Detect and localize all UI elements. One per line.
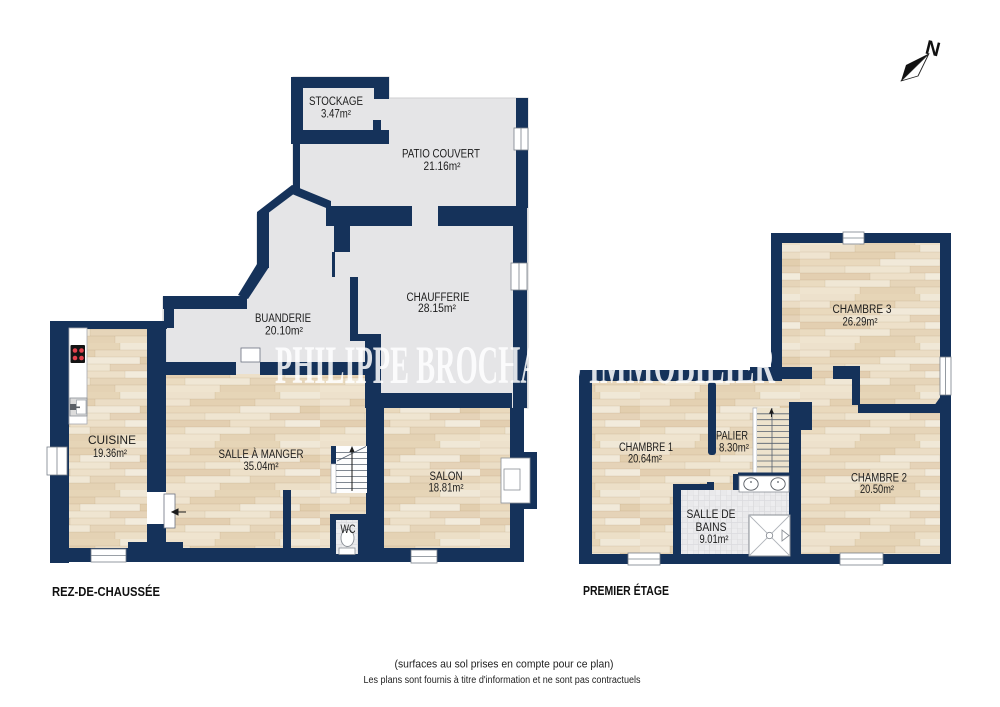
- svg-text:20.64m²: 20.64m²: [628, 454, 662, 466]
- svg-text:CHAMBRE 2: CHAMBRE 2: [851, 473, 907, 485]
- svg-text:20.50m²: 20.50m²: [860, 484, 894, 496]
- svg-text:BUANDERIE: BUANDERIE: [255, 313, 311, 325]
- svg-text:REZ-DE-CHAUSSÉE: REZ-DE-CHAUSSÉE: [52, 584, 160, 599]
- svg-text:Les plans sont fournis à titre: Les plans sont fournis à titre d'informa…: [364, 675, 641, 686]
- svg-text:BAINS: BAINS: [696, 522, 727, 534]
- svg-text:SALLE DE: SALLE DE: [687, 509, 736, 521]
- svg-text:CHAMBRE 1: CHAMBRE 1: [619, 442, 673, 454]
- svg-text:(surfaces au sol prises en com: (surfaces au sol prises en compte pour c…: [395, 659, 614, 671]
- svg-text:26.29m²: 26.29m²: [843, 317, 878, 329]
- svg-text:PALIER: PALIER: [716, 431, 748, 443]
- svg-text:8.30m²: 8.30m²: [719, 443, 749, 455]
- svg-text:28.15m²: 28.15m²: [418, 303, 456, 315]
- svg-text:STOCKAGE: STOCKAGE: [309, 96, 363, 108]
- svg-text:SALLE À MANGER: SALLE À MANGER: [219, 448, 304, 461]
- svg-text:WC: WC: [341, 524, 356, 536]
- svg-text:21.16m²: 21.16m²: [424, 161, 461, 173]
- svg-text:9.01m²: 9.01m²: [700, 534, 729, 546]
- svg-text:35.04m²: 35.04m²: [244, 461, 279, 473]
- svg-text:PREMIER ÉTAGE: PREMIER ÉTAGE: [583, 583, 669, 598]
- svg-text:3.47m²: 3.47m²: [321, 109, 351, 121]
- svg-text:CUISINE: CUISINE: [88, 435, 136, 447]
- svg-text:19.36m²: 19.36m²: [93, 448, 127, 460]
- svg-text:18.81m²: 18.81m²: [429, 483, 464, 495]
- svg-text:PHILIPPE BROCHARD IMMOBILIER: PHILIPPE BROCHARD IMMOBILIER: [275, 335, 776, 395]
- svg-text:CHAMBRE 3: CHAMBRE 3: [833, 304, 892, 316]
- svg-text:PATIO COUVERT: PATIO COUVERT: [402, 149, 480, 161]
- svg-text:SALON: SALON: [430, 471, 463, 483]
